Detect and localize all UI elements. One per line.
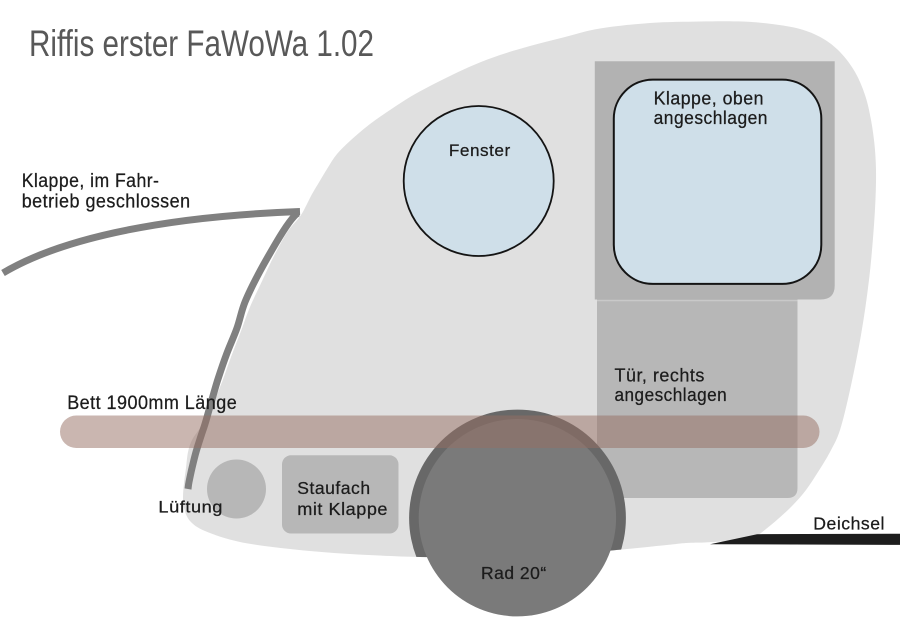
- svg-text:Riffis erster FaWoWa 1.02: Riffis erster FaWoWa 1.02: [29, 22, 374, 64]
- svg-text:Tür, rechts: Tür, rechts: [615, 366, 705, 386]
- svg-text:angeschlagen: angeschlagen: [615, 385, 728, 405]
- svg-text:mit Klappe: mit Klappe: [297, 499, 388, 519]
- svg-text:Klappe, im Fahr-: Klappe, im Fahr-: [22, 171, 160, 192]
- svg-text:Deichsel: Deichsel: [813, 513, 885, 533]
- svg-text:Staufach: Staufach: [297, 478, 370, 498]
- svg-text:Lüftung: Lüftung: [158, 498, 223, 517]
- svg-text:Bett 1900mm Länge: Bett 1900mm Länge: [67, 393, 237, 414]
- svg-text:angeschlagen: angeschlagen: [654, 108, 768, 128]
- svg-text:Rad 20“: Rad 20“: [481, 563, 547, 583]
- svg-text:Fenster: Fenster: [449, 141, 511, 160]
- svg-text:Klappe, oben: Klappe, oben: [654, 88, 764, 108]
- svg-text:betrieb geschlossen: betrieb geschlossen: [22, 192, 191, 213]
